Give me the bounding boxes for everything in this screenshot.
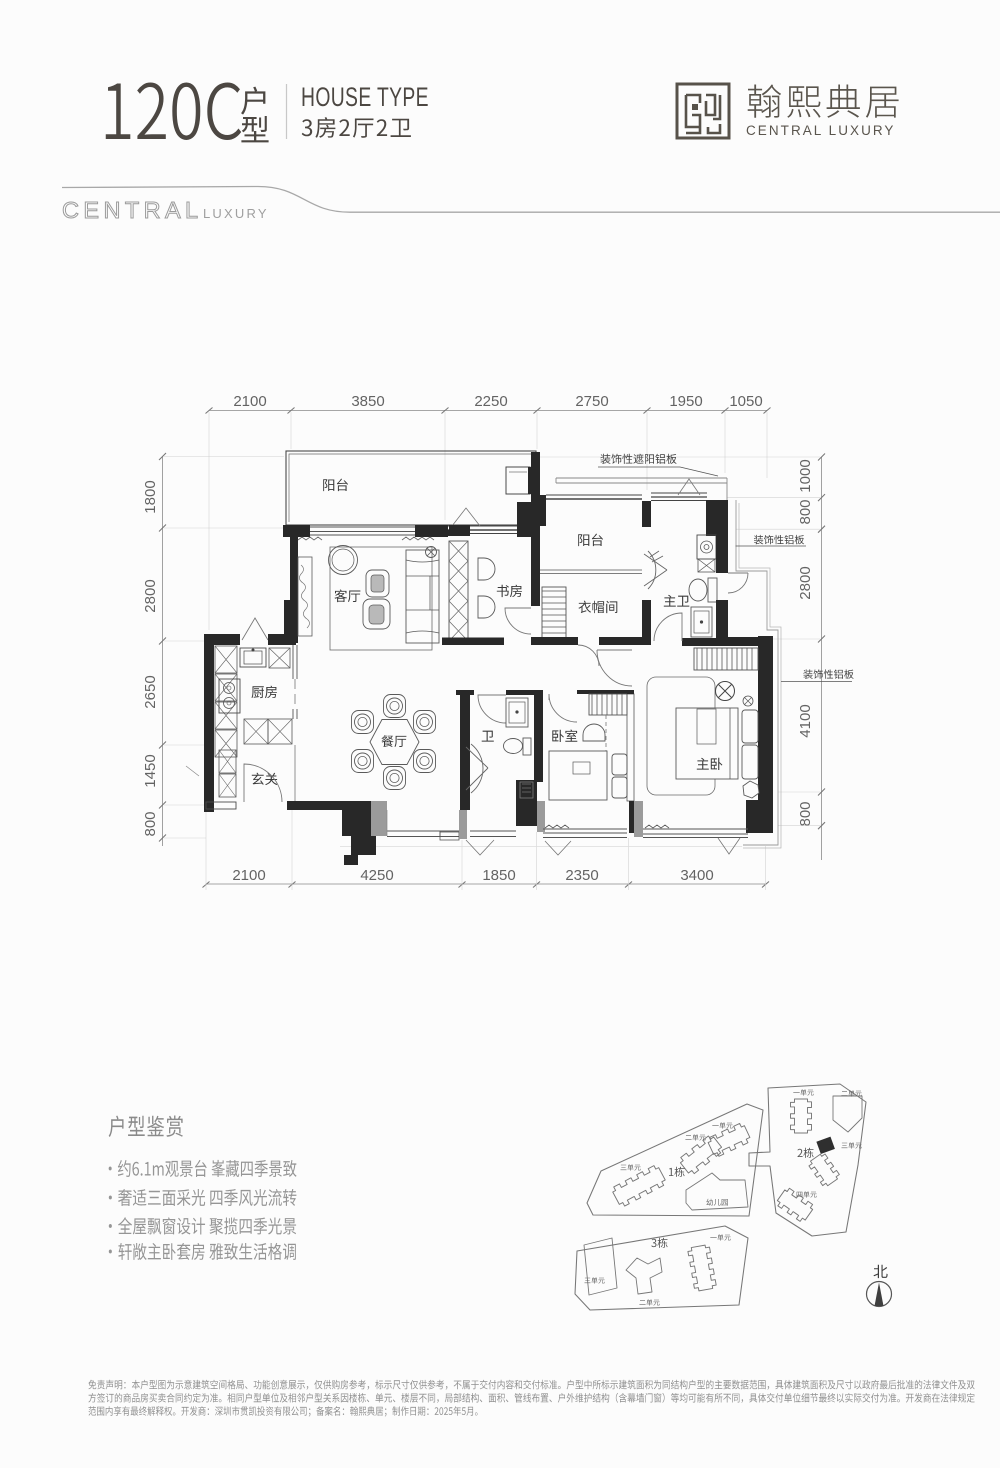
svg-text:1800: 1800 <box>142 480 159 513</box>
svg-text:2750: 2750 <box>575 393 608 410</box>
svg-text:LUXURY: LUXURY <box>203 206 269 221</box>
svg-text:1000: 1000 <box>797 459 814 492</box>
svg-text:800: 800 <box>797 499 814 524</box>
svg-text:4250: 4250 <box>360 867 393 884</box>
svg-text:2800: 2800 <box>142 579 159 612</box>
svg-text:800: 800 <box>797 801 814 826</box>
svg-text:3850: 3850 <box>351 393 384 410</box>
svg-text:1050: 1050 <box>729 393 762 410</box>
svg-text:3400: 3400 <box>680 867 713 884</box>
svg-text:2800: 2800 <box>797 566 814 599</box>
svg-text:2650: 2650 <box>142 675 159 708</box>
svg-text:2350: 2350 <box>565 867 598 884</box>
svg-text:CENTRAL: CENTRAL <box>62 197 203 223</box>
svg-text:HOUSE TYPE: HOUSE TYPE <box>301 82 429 112</box>
svg-text:1850: 1850 <box>482 867 515 884</box>
svg-text:4100: 4100 <box>797 704 814 737</box>
svg-text:800: 800 <box>142 811 159 836</box>
svg-text:2100: 2100 <box>232 867 265 884</box>
svg-text:2250: 2250 <box>474 393 507 410</box>
svg-text:2100: 2100 <box>233 393 266 410</box>
svg-text:CENTRAL LUXURY: CENTRAL LUXURY <box>746 123 895 138</box>
svg-text:1950: 1950 <box>669 393 702 410</box>
svg-text:1450: 1450 <box>142 754 159 787</box>
